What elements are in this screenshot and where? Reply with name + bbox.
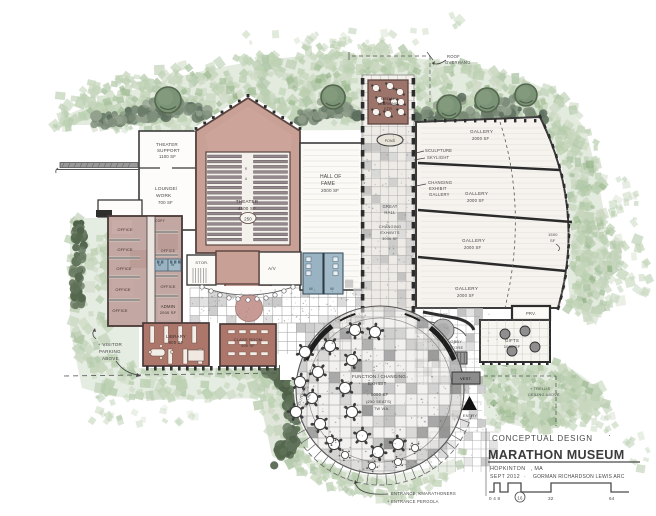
svg-text:+ ENTRANCE PERGOLA: + ENTRANCE PERGOLA <box>387 499 439 504</box>
svg-text:OVERHANG: OVERHANG <box>445 60 471 65</box>
svg-text:A/V: A/V <box>268 266 276 271</box>
svg-text:ENTRANCE, KMARATHONERS: ENTRANCE, KMARATHONERS <box>391 491 456 496</box>
svg-text:·: · <box>608 431 611 440</box>
svg-text:250: 250 <box>244 217 252 222</box>
svg-text:·: · <box>524 474 526 480</box>
svg-text:ROOF: ROOF <box>447 54 460 59</box>
svg-text:GALLERY: GALLERY <box>462 238 485 243</box>
svg-text:1500: 1500 <box>548 232 558 237</box>
svg-text:PARKING: PARKING <box>99 349 121 354</box>
svg-text:THEATER: THEATER <box>236 199 259 204</box>
svg-text:2000 SF: 2000 SF <box>457 293 474 298</box>
svg-text:OFFICE: OFFICE <box>161 249 176 253</box>
svg-text:CTR: CTR <box>384 107 392 111</box>
svg-text:OFFICE: OFFICE <box>112 308 127 313</box>
svg-text:64: 64 <box>609 496 615 501</box>
svg-text:5000 SF: 5000 SF <box>371 392 388 397</box>
svg-text:CEILING ABOVE: CEILING ABOVE <box>528 393 560 397</box>
svg-text:SEPT 2012: SEPT 2012 <box>490 474 520 480</box>
svg-text:GALLERY: GALLERY <box>455 286 478 291</box>
svg-text:1100 SF: 1100 SF <box>159 154 176 159</box>
svg-text:EXHIBITS: EXHIBITS <box>380 230 400 235</box>
svg-text:SCULPTURE: SCULPTURE <box>425 148 452 153</box>
svg-text:LEARNING: LEARNING <box>378 102 398 106</box>
svg-text:2000 SF: 2000 SF <box>160 310 177 315</box>
svg-text:HOPKINTON: HOPKINTON <box>490 466 526 472</box>
svg-text:GALLERY: GALLERY <box>429 192 450 197</box>
svg-text:FAME: FAME <box>321 181 336 187</box>
svg-text:ADMIN: ADMIN <box>161 304 176 309</box>
svg-text:ABOVE: ABOVE <box>102 356 119 361</box>
svg-text:OFFICE: OFFICE <box>117 247 132 252</box>
svg-text:ENTRY: ENTRY <box>463 413 478 418</box>
svg-text:LIBRARY: LIBRARY <box>166 334 186 339</box>
svg-text:PRV.: PRV. <box>526 311 536 316</box>
svg-text:+ TRELLIS: + TRELLIS <box>530 387 551 391</box>
svg-text:16: 16 <box>517 496 523 501</box>
svg-text:THEATER: THEATER <box>156 142 178 147</box>
svg-text:SUPPORT: SUPPORT <box>157 148 180 153</box>
svg-text:900 SF: 900 SF <box>241 344 255 348</box>
svg-text:CONCEPTUAL DESIGN: CONCEPTUAL DESIGN <box>492 434 593 443</box>
svg-text:3000 SF: 3000 SF <box>382 237 398 241</box>
svg-text:W: W <box>171 263 175 267</box>
svg-text:MEDAL: MEDAL <box>381 97 395 101</box>
svg-text:OFFICE: OFFICE <box>116 266 131 271</box>
svg-text:SKYLIGHT: SKYLIGHT <box>427 155 450 160</box>
svg-text:32: 32 <box>548 496 554 501</box>
svg-text:2000 SF: 2000 SF <box>321 188 339 193</box>
svg-text:2000 SF: 2000 SF <box>464 245 481 250</box>
svg-text:EXHIBIT: EXHIBIT <box>429 186 447 191</box>
svg-text:700 SF: 700 SF <box>158 200 173 205</box>
svg-text:LOUNGE/: LOUNGE/ <box>155 186 178 192</box>
svg-text:TW VIA: TW VIA <box>374 407 389 411</box>
svg-text:FUNCTION / CHANGING: FUNCTION / CHANGING <box>352 374 406 379</box>
svg-text:HALL: HALL <box>384 210 396 215</box>
svg-text:WORK: WORK <box>156 193 172 199</box>
svg-text:GORMAN RICHARDSON LEWIS ARC: GORMAN RICHARDSON LEWIS ARC <box>533 474 625 480</box>
svg-text:GALLERY: GALLERY <box>465 191 488 196</box>
svg-text:OFFICE: OFFICE <box>115 287 130 292</box>
svg-text:M: M <box>309 287 312 291</box>
svg-text:M: M <box>158 263 161 267</box>
svg-text:STOR.: STOR. <box>195 260 208 265</box>
svg-text:TREE: TREE <box>438 313 448 317</box>
svg-text:CLASS ROOM: CLASS ROOM <box>234 337 263 342</box>
svg-text:2000 SF: 2000 SF <box>472 136 489 141</box>
svg-text:VEST.: VEST. <box>460 376 472 381</box>
svg-text:(250 SEATS): (250 SEATS) <box>366 399 392 404</box>
svg-text:MARATHON MUSEUM: MARATHON MUSEUM <box>488 448 625 462</box>
svg-text:GIFTS: GIFTS <box>505 338 519 343</box>
svg-text:CHANGING: CHANGING <box>379 224 402 229</box>
svg-text:HALL OF: HALL OF <box>320 174 341 180</box>
svg-text:W: W <box>330 287 334 291</box>
svg-text:GALLERY: GALLERY <box>470 129 493 134</box>
svg-text:OFFICE: OFFICE <box>160 285 175 289</box>
svg-text:1000 SF: 1000 SF <box>504 344 521 349</box>
svg-text:0 4 8: 0 4 8 <box>489 496 500 501</box>
svg-text:GREAT: GREAT <box>382 204 397 209</box>
svg-text:+ VISITOR: + VISITOR <box>98 342 123 347</box>
svg-text:800 SF: 800 SF <box>169 340 184 345</box>
svg-text:2000 SF: 2000 SF <box>467 198 484 203</box>
svg-text:COPY: COPY <box>155 219 166 223</box>
svg-text:4500 SF: 4500 SF <box>238 206 256 211</box>
svg-text:CHANGING: CHANGING <box>428 180 452 185</box>
svg-text:OFFICE: OFFICE <box>117 227 132 232</box>
svg-text:, MA: , MA <box>531 466 543 472</box>
svg-text:SF: SF <box>550 238 556 243</box>
